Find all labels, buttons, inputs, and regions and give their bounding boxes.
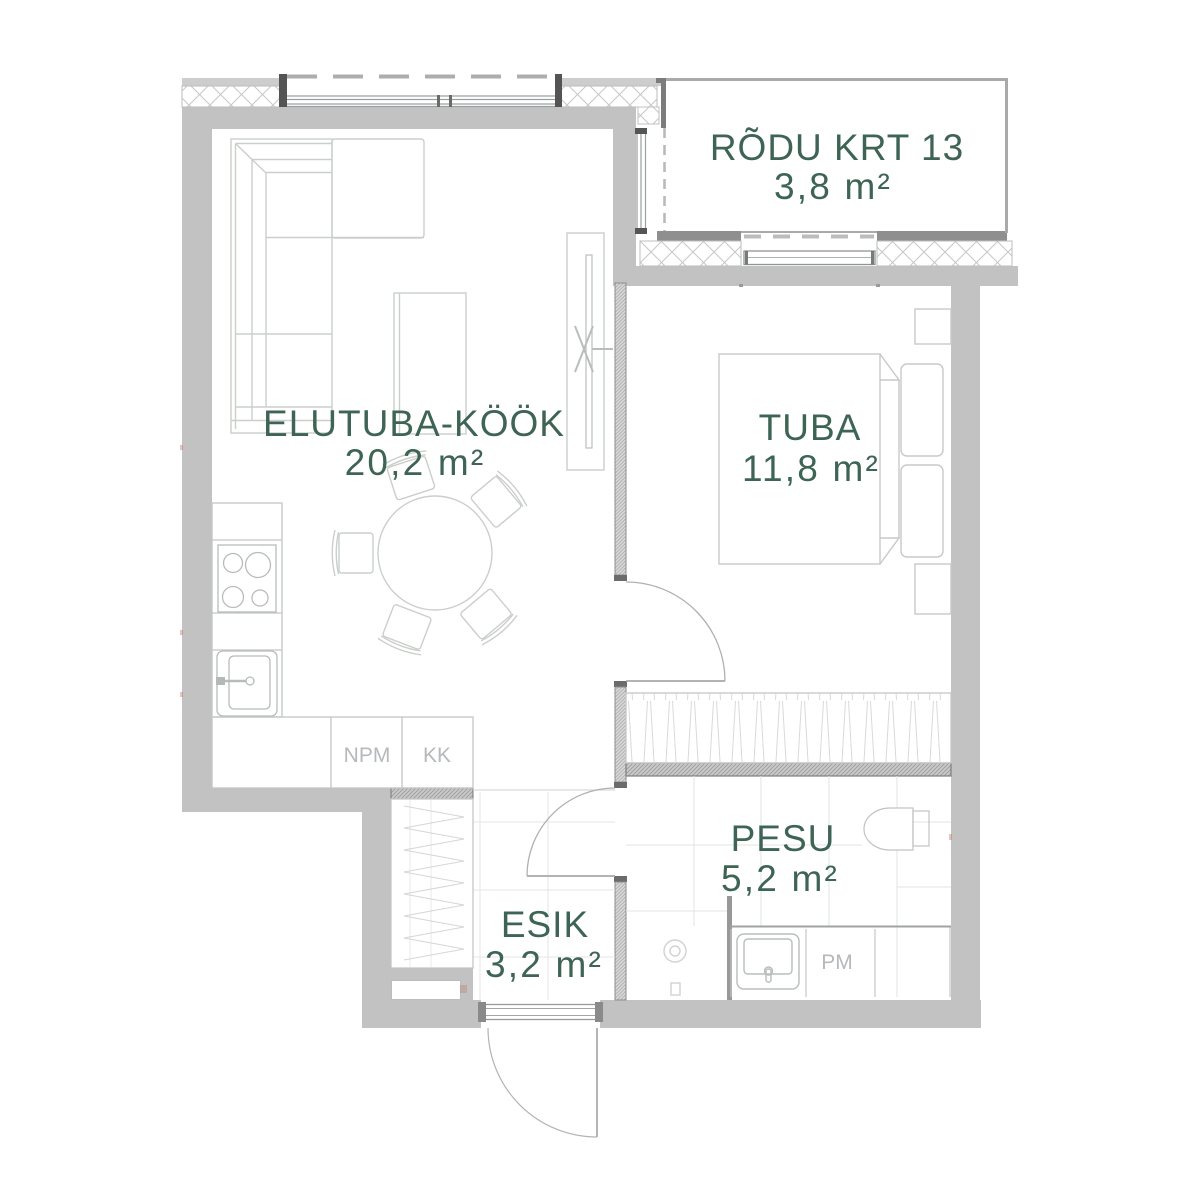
svg-text:20,2 m²: 20,2 m² — [345, 442, 486, 483]
svg-text:3,8 m²: 3,8 m² — [774, 166, 892, 207]
svg-text:5,2 m²: 5,2 m² — [721, 858, 839, 899]
svg-text:ESIK: ESIK — [501, 904, 589, 945]
svg-text:PESU: PESU — [731, 818, 836, 859]
svg-text:NPM: NPM — [344, 744, 391, 767]
svg-text:PM: PM — [821, 951, 853, 974]
svg-text:RÕDU KRT 13: RÕDU KRT 13 — [710, 127, 964, 168]
svg-text:TUBA: TUBA — [759, 407, 862, 448]
svg-text:3,2 m²: 3,2 m² — [485, 944, 603, 985]
svg-text:KK: KK — [423, 744, 451, 767]
svg-text:11,8 m²: 11,8 m² — [742, 448, 880, 489]
svg-text:ELUTUBA-KÖÖK: ELUTUBA-KÖÖK — [263, 403, 565, 444]
